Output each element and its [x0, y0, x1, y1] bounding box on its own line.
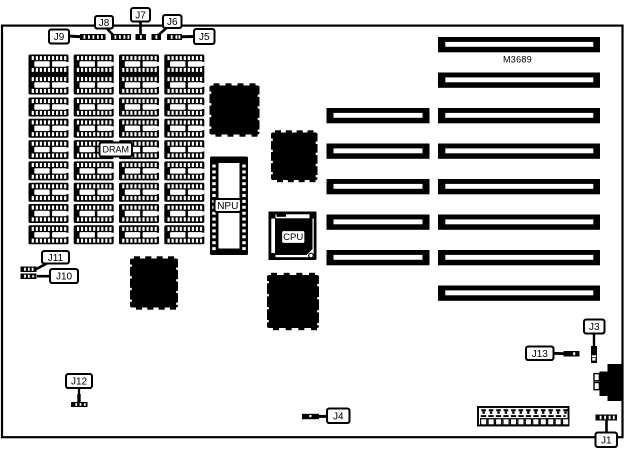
svg-text:J8: J8 — [99, 18, 110, 29]
svg-text:J7: J7 — [135, 10, 146, 21]
svg-text:J10: J10 — [56, 272, 73, 283]
svg-text:J4: J4 — [333, 411, 344, 422]
svg-text:J5: J5 — [199, 32, 210, 43]
svg-text:J3: J3 — [589, 322, 600, 333]
svg-text:J9: J9 — [54, 32, 65, 43]
svg-text:J13: J13 — [532, 349, 549, 360]
svg-text:J6: J6 — [167, 17, 178, 28]
svg-text:J1: J1 — [601, 435, 612, 446]
svg-text:NPU: NPU — [217, 201, 238, 212]
svg-text:J11: J11 — [48, 253, 64, 264]
svg-text:M3689: M3689 — [503, 55, 532, 65]
svg-text:DRAM: DRAM — [103, 145, 130, 155]
svg-text:J12: J12 — [71, 377, 88, 388]
svg-text:CPU: CPU — [283, 232, 303, 243]
